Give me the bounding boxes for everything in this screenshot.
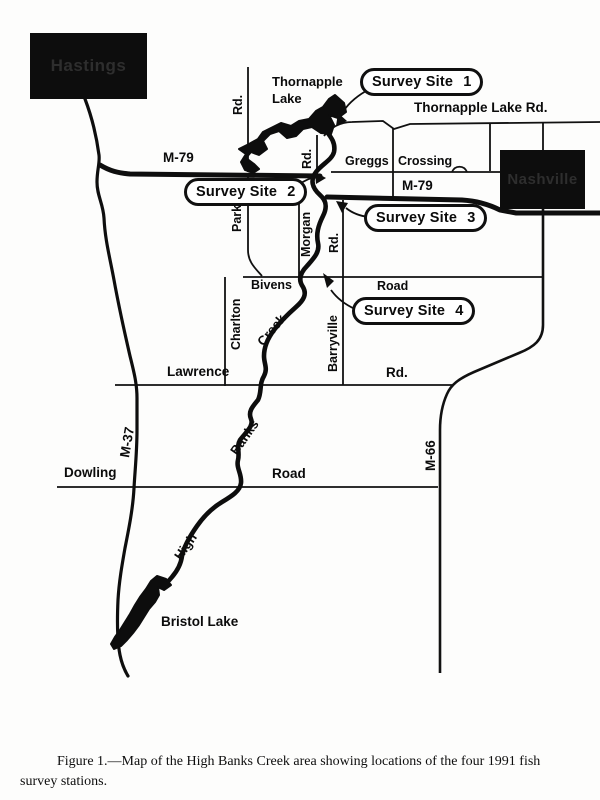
bivens-label: Bivens bbox=[251, 279, 292, 293]
thornapple-lake-label-line1: Thornapple bbox=[272, 74, 343, 91]
thornapple-lake-label: Thornapple Lake bbox=[272, 74, 343, 108]
survey-site-1-callout: Survey Site 1 bbox=[360, 68, 483, 96]
morgan-label: Morgan bbox=[299, 212, 313, 257]
m37-road-line bbox=[85, 99, 137, 676]
site4-arrowhead bbox=[323, 273, 334, 288]
figure-page: Hastings Nashville Thornapple Lake Brist… bbox=[0, 0, 600, 800]
dowling-label: Dowling bbox=[64, 466, 117, 481]
park-rd-top-label: Rd. bbox=[231, 95, 245, 115]
survey-site-1-name: Survey Site bbox=[372, 74, 453, 90]
figure-caption: Figure 1.—Map of the High Banks Creek ar… bbox=[20, 752, 586, 793]
charlton-label: Charlton bbox=[229, 299, 243, 350]
bristol-lake-label: Bristol Lake bbox=[161, 615, 238, 630]
dowling-road-label: Road bbox=[272, 467, 306, 482]
caption-line1: Figure 1.—Map of the High Banks Creek ar… bbox=[20, 752, 586, 772]
survey-site-3-callout: Survey Site 3 bbox=[364, 204, 487, 232]
survey-site-4-name: Survey Site bbox=[364, 303, 445, 319]
morgan-rd-label: Rd. bbox=[327, 233, 341, 253]
m79-east-label: M-79 bbox=[402, 179, 433, 194]
survey-site-4-number: 4 bbox=[455, 303, 463, 319]
survey-site-3-number: 3 bbox=[467, 210, 475, 226]
survey-site-1-number: 1 bbox=[463, 74, 471, 90]
nashville-city-box: Nashville bbox=[500, 150, 585, 209]
hastings-city-box: Hastings bbox=[30, 33, 147, 99]
crossing-label: Crossing bbox=[398, 155, 452, 169]
lawrence-label: Lawrence bbox=[167, 365, 229, 380]
park-label: Park bbox=[230, 205, 244, 232]
bivens-road-label: Road bbox=[377, 280, 408, 294]
hastings-label: Hastings bbox=[51, 56, 127, 76]
caption-line2: survey stations. bbox=[20, 772, 586, 792]
survey-site-3-name: Survey Site bbox=[376, 210, 457, 226]
m79-west-label: M-79 bbox=[163, 151, 194, 166]
map-line-art bbox=[0, 0, 600, 800]
survey-site-2-number: 2 bbox=[287, 184, 295, 200]
thornapple-lake-label-line2: Lake bbox=[272, 91, 343, 108]
barryville-label: Barryville bbox=[326, 315, 340, 372]
survey-site-4-callout: Survey Site 4 bbox=[352, 297, 475, 325]
survey-site-2-name: Survey Site bbox=[196, 184, 277, 200]
nashville-label: Nashville bbox=[507, 171, 577, 188]
thornapple-lake-rd-label: Thornapple Lake Rd. bbox=[414, 101, 548, 116]
m79-west-line bbox=[100, 165, 320, 176]
lake-rd-label: Rd. bbox=[300, 149, 314, 169]
m66-label: M-66 bbox=[423, 440, 438, 471]
thornapple-lake-road-line bbox=[324, 121, 600, 136]
greggs-label: Greggs bbox=[345, 155, 389, 169]
lawrence-rd-label: Rd. bbox=[386, 366, 408, 381]
site3-arrowhead bbox=[336, 201, 348, 213]
survey-site-2-callout: Survey Site 2 bbox=[184, 178, 307, 206]
